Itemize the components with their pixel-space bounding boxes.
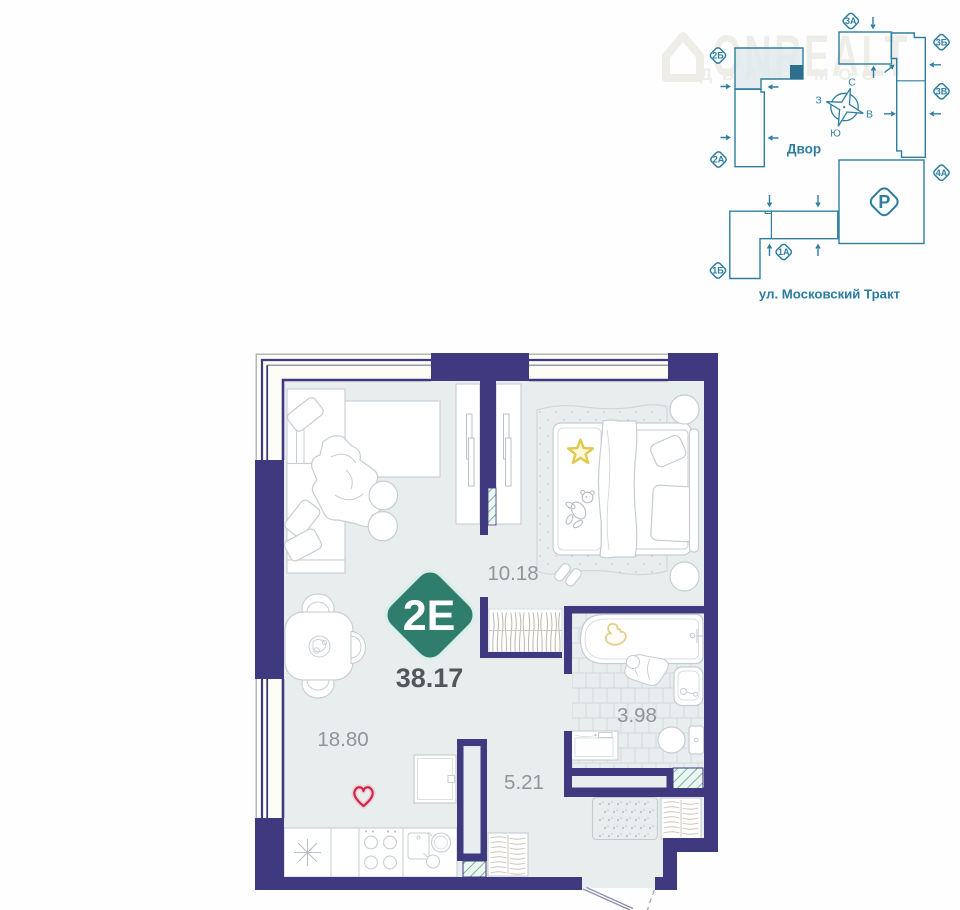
svg-text:2Е: 2Е: [403, 592, 456, 640]
svg-text:3Б: 3Б: [936, 37, 948, 47]
svg-text:3А: 3А: [845, 16, 857, 26]
svg-text:2Б: 2Б: [712, 51, 724, 61]
svg-text:3.98: 3.98: [617, 704, 657, 727]
svg-text:38.17: 38.17: [396, 663, 464, 693]
svg-text:18.80: 18.80: [317, 728, 368, 751]
svg-text:Двор: Двор: [787, 142, 821, 157]
svg-text:4А: 4А: [936, 168, 948, 178]
svg-text:1Б: 1Б: [712, 266, 724, 276]
svg-text:2А: 2А: [713, 155, 725, 165]
svg-text:Ю: Ю: [830, 128, 841, 140]
svg-text:С: С: [848, 77, 856, 89]
svg-text:В: В: [866, 109, 873, 121]
svg-text:ул. Московский Тракт: ул. Московский Тракт: [759, 287, 901, 302]
svg-text:Р: Р: [878, 192, 890, 212]
svg-text:1А: 1А: [778, 247, 790, 257]
svg-text:10.18: 10.18: [487, 562, 538, 585]
svg-text:5.21: 5.21: [504, 771, 544, 794]
svg-text:З: З: [815, 95, 821, 107]
svg-text:3В: 3В: [936, 87, 948, 97]
